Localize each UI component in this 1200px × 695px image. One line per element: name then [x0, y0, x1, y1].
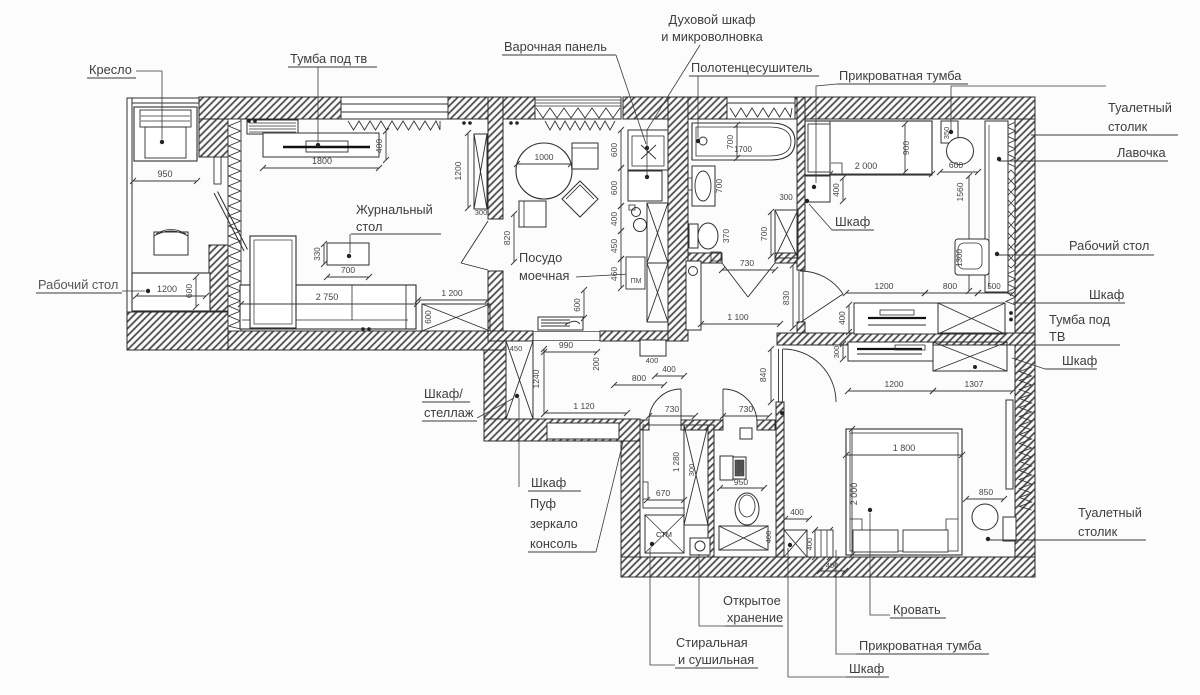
svg-text:Духовой шкаф: Духовой шкаф	[669, 12, 756, 27]
svg-text:990: 990	[559, 340, 573, 350]
svg-text:Шкаф: Шкаф	[849, 661, 884, 676]
svg-text:2 000: 2 000	[855, 161, 878, 171]
svg-text:Открытое: Открытое	[723, 593, 781, 608]
svg-text:СТМ: СТМ	[656, 530, 672, 539]
svg-text:700: 700	[759, 227, 769, 241]
svg-text:600: 600	[573, 298, 582, 312]
svg-text:Кресло: Кресло	[89, 62, 132, 77]
svg-text:600: 600	[184, 284, 194, 298]
svg-text:900: 900	[901, 141, 911, 155]
svg-text:300: 300	[779, 193, 793, 202]
svg-text:2 750: 2 750	[316, 292, 339, 302]
svg-text:1200: 1200	[885, 379, 904, 389]
svg-text:Туалетный: Туалетный	[1108, 100, 1172, 115]
svg-text:1 280: 1 280	[672, 451, 681, 472]
svg-text:400: 400	[805, 538, 814, 551]
svg-text:столик: столик	[1108, 119, 1148, 134]
svg-text:хранение: хранение	[727, 610, 783, 625]
svg-text:460: 460	[609, 267, 619, 281]
svg-text:1700: 1700	[734, 145, 752, 154]
svg-text:1 200: 1 200	[441, 288, 463, 298]
svg-text:450: 450	[609, 239, 619, 253]
svg-text:1200: 1200	[453, 161, 463, 180]
svg-text:500: 500	[987, 282, 1001, 291]
svg-text:1560: 1560	[955, 182, 965, 201]
svg-text:400: 400	[832, 183, 841, 197]
svg-text:400: 400	[662, 365, 676, 374]
svg-text:Рабочий стол: Рабочий стол	[38, 277, 118, 292]
svg-text:700: 700	[341, 265, 355, 275]
svg-text:Прикроватная тумба: Прикроватная тумба	[859, 638, 982, 653]
svg-text:600: 600	[424, 310, 433, 324]
svg-text:Шкаф: Шкаф	[1062, 353, 1097, 368]
svg-text:400: 400	[646, 356, 659, 365]
svg-text:670: 670	[656, 488, 670, 498]
svg-text:1800: 1800	[312, 156, 332, 166]
svg-text:1307: 1307	[965, 379, 984, 389]
svg-text:400: 400	[764, 531, 773, 544]
svg-text:700: 700	[714, 179, 724, 193]
svg-text:консоль: консоль	[530, 536, 578, 551]
svg-text:370: 370	[721, 229, 731, 243]
svg-text:Посудо: Посудо	[519, 250, 562, 265]
svg-text:730: 730	[740, 258, 754, 268]
svg-text:400: 400	[374, 139, 384, 153]
svg-text:Шкаф/: Шкаф/	[424, 386, 463, 401]
svg-text:и сушильная: и сушильная	[678, 652, 754, 667]
svg-text:400: 400	[838, 311, 847, 325]
svg-text:1300: 1300	[955, 249, 964, 267]
svg-text:Тумба под: Тумба под	[1049, 312, 1110, 327]
svg-text:Тумба под тв: Тумба под тв	[290, 51, 367, 66]
svg-text:Кровать: Кровать	[893, 602, 941, 617]
svg-text:300: 300	[832, 346, 841, 359]
svg-text:Прикроватная тумба: Прикроватная тумба	[839, 68, 962, 83]
svg-text:Журнальный: Журнальный	[356, 202, 433, 217]
svg-text:830: 830	[781, 291, 791, 305]
svg-text:ТВ: ТВ	[1049, 329, 1065, 344]
svg-text:стеллаж: стеллаж	[424, 405, 474, 420]
svg-text:600: 600	[949, 160, 963, 170]
svg-text:Рабочий стол: Рабочий стол	[1069, 238, 1149, 253]
svg-text:Лавочка: Лавочка	[1117, 145, 1167, 160]
svg-text:Шкаф: Шкаф	[835, 214, 870, 229]
svg-text:Варочная панель: Варочная панель	[504, 39, 607, 54]
svg-text:1 800: 1 800	[893, 443, 916, 453]
svg-text:1200: 1200	[157, 284, 177, 294]
svg-text:1 100: 1 100	[727, 312, 749, 322]
svg-text:800: 800	[943, 281, 957, 291]
svg-text:600: 600	[609, 143, 619, 157]
svg-text:стол: стол	[356, 219, 382, 234]
svg-text:зеркало: зеркало	[530, 516, 578, 531]
svg-text:400: 400	[609, 212, 619, 226]
svg-text:и микроволновка: и микроволновка	[661, 29, 763, 44]
svg-text:300: 300	[687, 464, 696, 477]
svg-text:350: 350	[737, 460, 746, 474]
svg-text:1000: 1000	[535, 152, 554, 162]
svg-text:1200: 1200	[875, 281, 894, 291]
svg-text:850: 850	[979, 487, 993, 497]
svg-text:2 000: 2 000	[849, 483, 859, 506]
svg-text:1 120: 1 120	[573, 401, 595, 411]
svg-text:730: 730	[739, 404, 753, 414]
svg-text:730: 730	[665, 404, 679, 414]
svg-text:Стиральная: Стиральная	[676, 635, 748, 650]
svg-text:600: 600	[609, 181, 619, 195]
svg-text:300: 300	[475, 208, 488, 217]
svg-text:820: 820	[502, 231, 512, 245]
svg-text:Шкаф: Шкаф	[1089, 287, 1124, 302]
svg-text:450: 450	[510, 344, 523, 353]
svg-text:200: 200	[592, 357, 601, 371]
svg-text:400: 400	[790, 508, 804, 517]
svg-text:950: 950	[734, 477, 748, 487]
svg-text:800: 800	[632, 373, 646, 383]
svg-text:1240: 1240	[531, 369, 541, 388]
svg-text:ПМ: ПМ	[631, 278, 642, 285]
svg-text:столик: столик	[1078, 524, 1118, 539]
svg-text:моечная: моечная	[519, 268, 569, 283]
svg-text:950: 950	[157, 169, 172, 179]
svg-text:Пуф: Пуф	[530, 496, 556, 511]
svg-text:840: 840	[758, 368, 768, 382]
svg-text:330: 330	[313, 247, 322, 261]
svg-text:Полотенцесушитель: Полотенцесушитель	[691, 60, 813, 75]
svg-text:Шкаф: Шкаф	[531, 475, 566, 490]
svg-text:Туалетный: Туалетный	[1078, 505, 1142, 520]
